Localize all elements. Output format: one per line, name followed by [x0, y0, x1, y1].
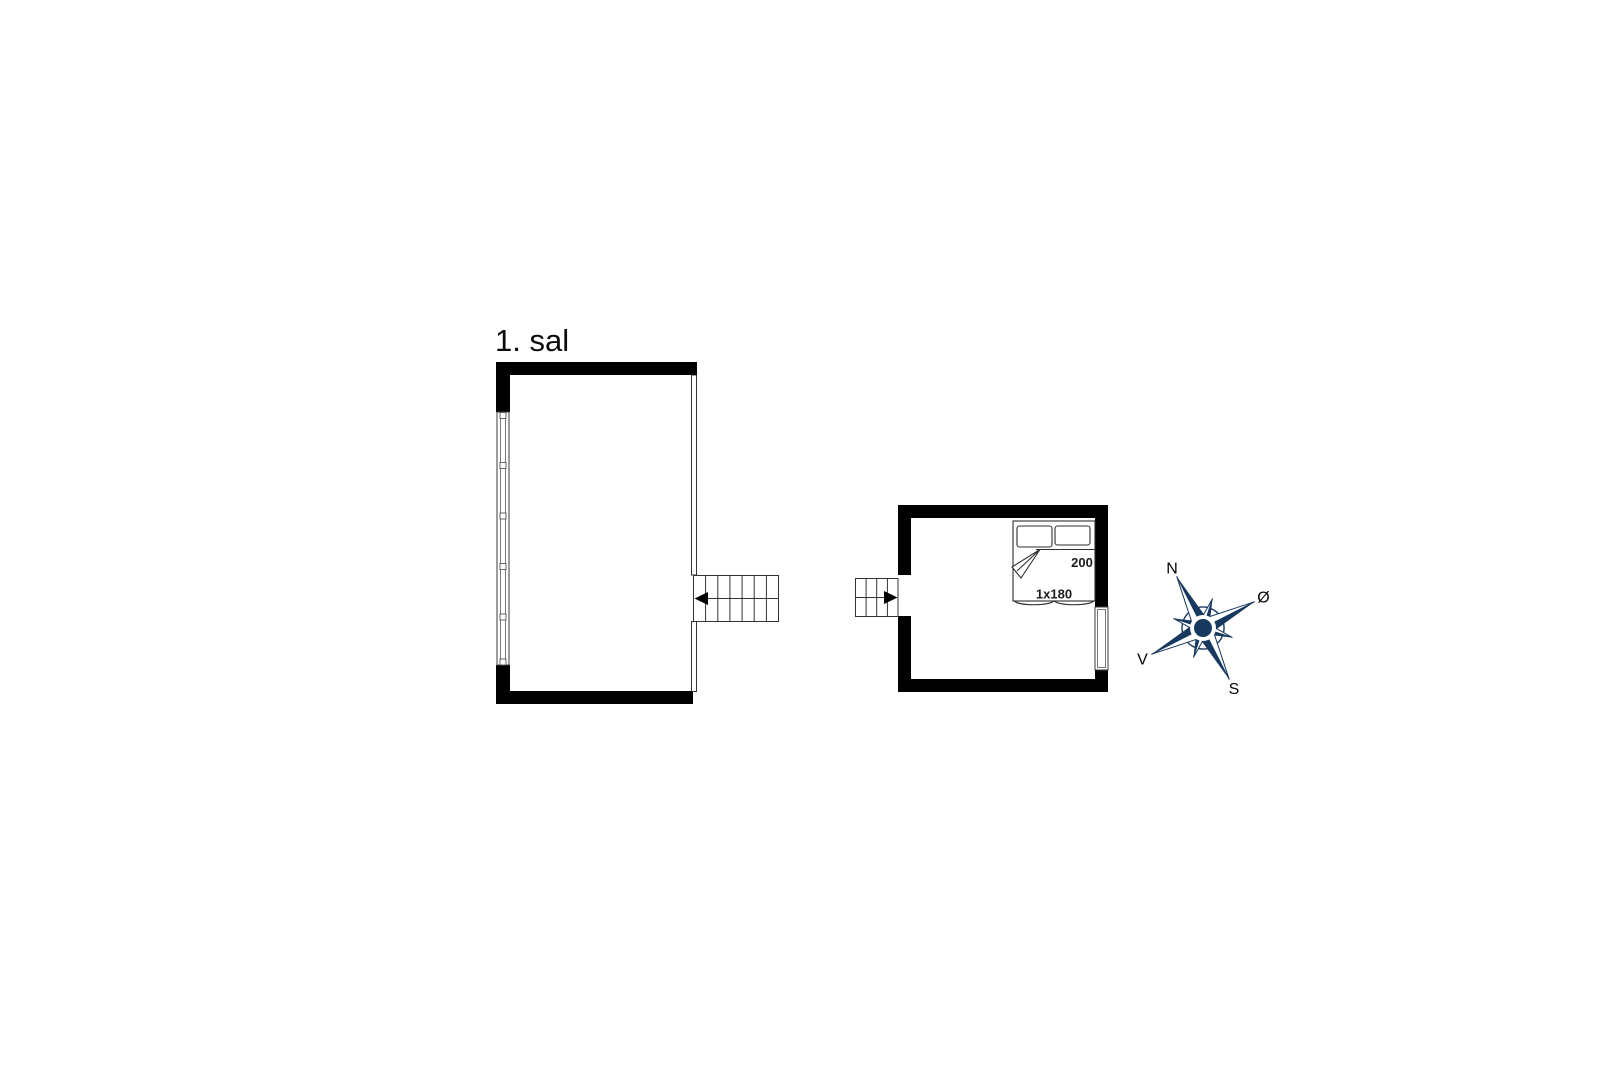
- staircase-main: [694, 576, 779, 622]
- wall-left-upper: [496, 362, 510, 412]
- window-east: [1095, 607, 1108, 670]
- staircase-annex: [856, 579, 899, 617]
- room-bedroom: 200 1x180: [856, 505, 1109, 692]
- wall-right-lower: [1095, 670, 1108, 679]
- floor-plan: 1. sal: [0, 0, 1600, 1066]
- pillow: [1017, 526, 1052, 547]
- pillow: [1055, 526, 1090, 545]
- compass-label-north: N: [1166, 561, 1178, 578]
- floor-title: 1. sal: [495, 323, 569, 358]
- wall-top: [496, 362, 697, 375]
- wall-top: [898, 505, 1108, 518]
- wall-left-lower: [898, 616, 911, 679]
- compass-label-east: Ø: [1257, 590, 1269, 607]
- bed-length-label: 200: [1071, 555, 1093, 570]
- compass-rose-icon: N Ø S V: [1125, 550, 1281, 706]
- bed-foot-scallop: [1014, 601, 1094, 605]
- compass-label-south: S: [1229, 681, 1240, 698]
- wall-bottom: [898, 679, 1108, 692]
- wall-bottom: [496, 691, 693, 704]
- wall-left-upper: [898, 505, 911, 575]
- compass-label-west: V: [1137, 652, 1148, 669]
- floor-plan-canvas: 1. sal: [0, 0, 1600, 1066]
- room-main: [496, 362, 779, 704]
- compass-hub: [1194, 619, 1212, 637]
- bed-size-label: 1x180: [1036, 587, 1072, 602]
- wall-right-upper: [1095, 505, 1108, 607]
- wall-left-lower: [496, 665, 510, 704]
- double-bed: 200 1x180: [1012, 521, 1095, 605]
- window-band-west: [497, 412, 509, 665]
- wall-right-upper: [692, 375, 697, 575]
- wall-right-lower: [692, 622, 697, 692]
